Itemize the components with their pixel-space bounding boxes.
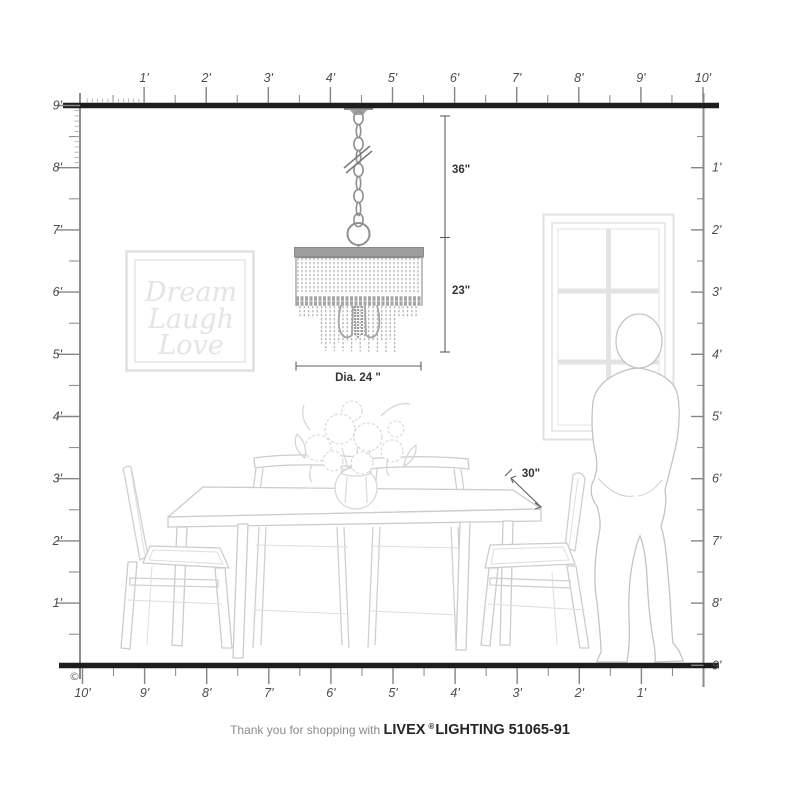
ruler-label: 7' <box>53 223 63 237</box>
wall-art-frame: Dream Laugh Love <box>127 252 254 371</box>
chain-break-mark <box>346 151 372 173</box>
diagram-canvas: Dream Laugh Love <box>0 0 800 800</box>
product-number: LIGHTING 51065-91 <box>435 722 570 738</box>
ruler-label: 1' <box>637 686 647 700</box>
footer-caption: Thank you for shopping with LIVEX®LIGHTI… <box>0 722 800 738</box>
product-scale-diagram: Dream Laugh Love <box>0 0 800 800</box>
fixture-diameter-label: Dia. 24 " <box>335 372 381 384</box>
ruler-label: 3' <box>513 686 523 700</box>
hang-height-label: 36" <box>452 164 470 176</box>
ruler-label: 5' <box>712 410 722 424</box>
ruler-label: 5' <box>388 71 398 85</box>
ruler-label: 3' <box>712 285 722 299</box>
ruler-label: 3' <box>264 71 274 85</box>
ruler-label: 5' <box>53 347 63 361</box>
drum-band <box>295 248 424 257</box>
dining-table-and-chairs <box>121 401 589 658</box>
ruler-label: 9' <box>140 686 150 700</box>
ruler-label: 6' <box>326 686 336 700</box>
ruler-label: 10' <box>74 686 91 700</box>
ruler-label: 8' <box>712 596 722 610</box>
ruler-label: 9' <box>712 658 722 672</box>
ruler-label: 6' <box>450 71 460 85</box>
wall-art-line3: Love <box>157 330 223 361</box>
fixture-height-label: 23" <box>452 285 470 297</box>
ruler-label: 2' <box>574 686 585 700</box>
ruler-label: 3' <box>53 472 63 486</box>
ruler-label: 2' <box>711 223 722 237</box>
ruler-label: 8' <box>202 686 212 700</box>
ruler-label: 6' <box>712 472 722 486</box>
ruler-label: 4' <box>326 71 336 85</box>
chair-back-right <box>368 457 469 648</box>
ruler-label: 6' <box>53 285 63 299</box>
candle-arms <box>339 305 379 338</box>
ruler-label: 5' <box>388 686 398 700</box>
ruler-label: 1' <box>139 71 149 85</box>
ruler-label: 7' <box>264 686 274 700</box>
registered-mark: ® <box>428 722 434 731</box>
ruler-label: 1' <box>53 596 63 610</box>
ruler-label: 4' <box>53 410 63 424</box>
pendant-light <box>295 103 424 352</box>
brand-name: LIVEX <box>384 722 426 738</box>
ruler-label: 7' <box>712 534 722 548</box>
ruler-label: 7' <box>512 71 522 85</box>
ruler-label: 8' <box>53 161 63 175</box>
ruler-label: 8' <box>574 71 584 85</box>
dimension-annotations: 36" 23" Dia. 24 " 30" <box>296 116 541 509</box>
table-depth-label: 30" <box>522 468 540 480</box>
hanging-chain <box>354 111 363 226</box>
ruler-label: 9' <box>53 99 63 113</box>
footer-text: Thank you for shopping with <box>230 723 380 737</box>
ruler-label: 4' <box>712 347 722 361</box>
ruler-label: 2' <box>52 534 63 548</box>
ruler-label: 9' <box>636 71 646 85</box>
ruler-label: 1' <box>712 161 722 175</box>
ruler-label: 4' <box>450 686 460 700</box>
ruler-label: 2' <box>201 71 212 85</box>
ruler-label: 10' <box>695 71 712 85</box>
copyright-symbol: © <box>69 670 80 683</box>
